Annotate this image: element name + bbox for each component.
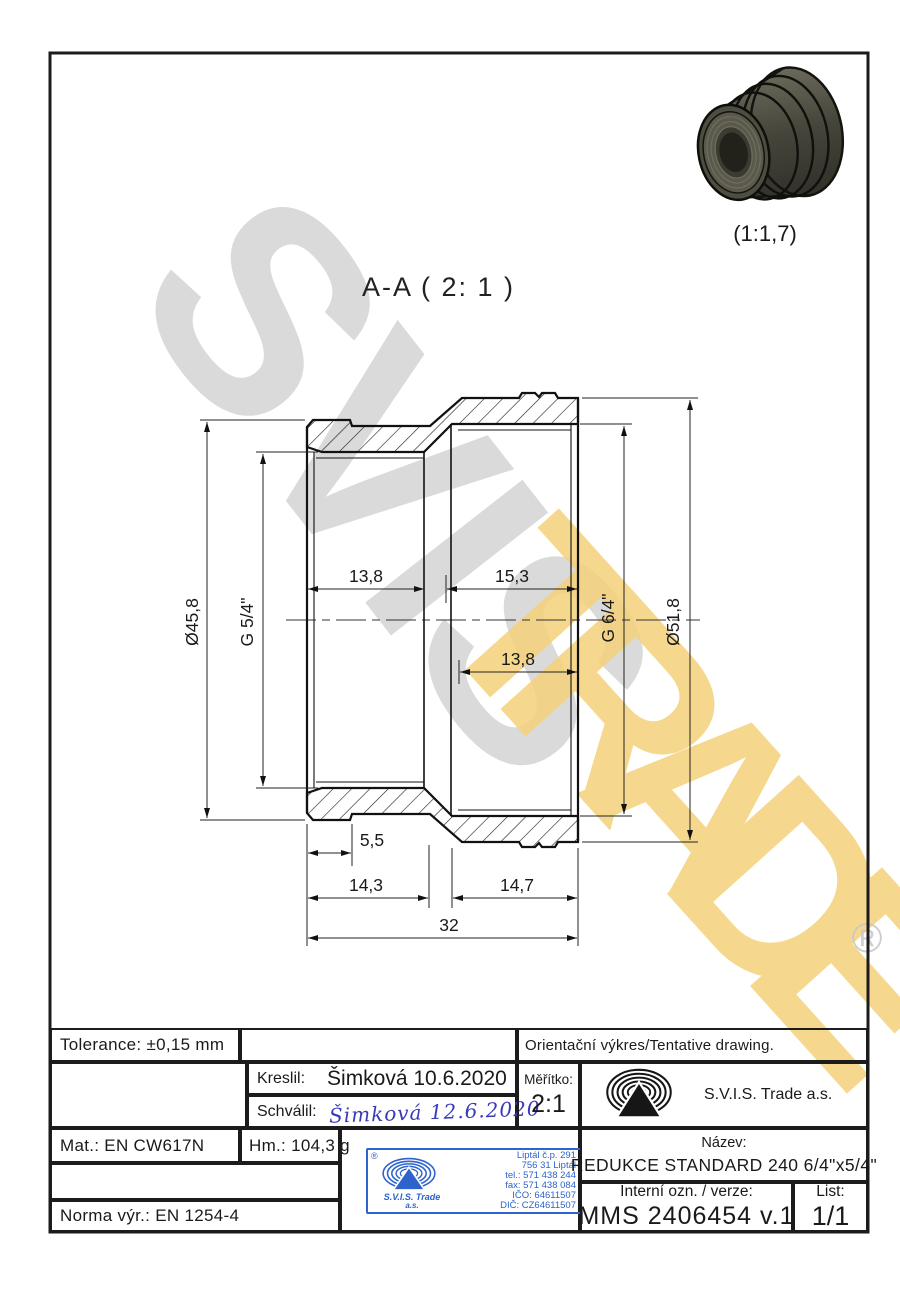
empty-cell-top — [240, 1028, 517, 1062]
norma-cell: Norma výr.: EN 1254-4 — [50, 1200, 340, 1232]
dim-total-len: 32 — [439, 915, 458, 935]
meritko-label: Měřítko: — [524, 1072, 573, 1087]
nazev-cell: Název: REDUKCE STANDARD 240 6/4"x5/4" — [580, 1128, 868, 1182]
render-scale-label: (1:1,7) — [733, 221, 797, 246]
section-label: A-A ( 2: 1 ) — [362, 272, 515, 302]
orientation-note-cell: Orientační výkres/Tentative drawing. — [517, 1028, 868, 1062]
weight-cell: Hm.: 104,3 g — [240, 1128, 340, 1163]
stamp-company-line2: a.s. — [376, 1202, 448, 1211]
dim-depth-right-mid: 13,8 — [501, 649, 535, 669]
kreslil-value: Šimková 10.6.2020 — [327, 1067, 507, 1091]
interni-label: Interní ozn. / verze: — [620, 1183, 753, 1201]
dim-thread-right: G 6/4" — [598, 593, 618, 642]
weight-value: Hm.: 104,3 g — [249, 1136, 350, 1156]
list-cell: List: 1/1 — [793, 1182, 868, 1232]
dim-relief: 5,5 — [360, 830, 384, 850]
interni-cell: Interní ozn. / verze: MMS 2406454 v.1 — [580, 1182, 793, 1232]
list-value: 1/1 — [812, 1201, 850, 1232]
dim-len-left: 14,3 — [349, 875, 383, 895]
company-stamp: ® S.V.I.S. Trade a.s. Liptál č.p. 291 75… — [366, 1148, 582, 1214]
tolerance-value: Tolerance: ±0,15 mm — [60, 1035, 224, 1055]
stamp-registered-icon: ® — [371, 1151, 378, 1161]
stamp-dic: DIČ: CZ64611507 — [500, 1201, 576, 1211]
render-3d — [684, 59, 854, 217]
stamp-company: S.V.I.S. Trade a.s. — [376, 1193, 448, 1210]
nazev-value: REDUKCE STANDARD 240 6/4"x5/4" — [571, 1155, 877, 1176]
meritko-cell: Měřítko: 2:1 — [517, 1062, 580, 1128]
orientation-note: Orientační výkres/Tentative drawing. — [525, 1037, 774, 1054]
dim-thread-left: G 5/4" — [237, 597, 257, 646]
schvalil-label: Schválil: — [257, 1103, 317, 1121]
dim-depth-right-top: 15,3 — [495, 566, 529, 586]
material-value: Mat.: EN CW617N — [60, 1136, 204, 1156]
nazev-label: Název: — [701, 1135, 746, 1151]
dim-len-right: 14,7 — [500, 875, 534, 895]
dim-outer-dia-left: Ø45,8 — [182, 598, 202, 646]
norma-value: Norma výr.: EN 1254-4 — [60, 1206, 239, 1226]
svis-logo-icon — [602, 1067, 676, 1123]
meritko-value: 2:1 — [531, 1090, 566, 1119]
empty-cell-bottom — [50, 1163, 340, 1200]
schvalil-signature: Šimková 12.6.2020 — [328, 1096, 540, 1127]
empty-cell-left — [50, 1062, 247, 1128]
drawing-sheet: SVIS TRADE ® (1:1,7) A-A ( 2: 1 ) — [0, 0, 900, 1288]
dim-outer-dia-right: Ø51,8 — [663, 598, 683, 646]
company-name: S.V.I.S. Trade a.s. — [704, 1086, 832, 1104]
schvalil-cell: Schválil: Šimková 12.6.2020 — [247, 1095, 517, 1128]
dim-depth-left-top: 13,8 — [349, 566, 383, 586]
list-label: List: — [816, 1183, 844, 1201]
material-cell: Mat.: EN CW617N — [50, 1128, 240, 1163]
kreslil-label: Kreslil: — [257, 1070, 305, 1088]
stamp-logo-icon — [378, 1157, 440, 1193]
interni-value: MMS 2406454 v.1 — [578, 1202, 794, 1231]
stamp-address: Liptál č.p. 291 756 31 Liptál tel.: 571 … — [500, 1151, 576, 1210]
company-cell: S.V.I.S. Trade a.s. — [580, 1062, 868, 1128]
kreslil-cell: Kreslil: Šimková 10.6.2020 — [247, 1062, 517, 1095]
tolerance-cell: Tolerance: ±0,15 mm — [50, 1028, 240, 1062]
stamp-cell: ® S.V.I.S. Trade a.s. Liptál č.p. 291 75… — [340, 1128, 580, 1232]
